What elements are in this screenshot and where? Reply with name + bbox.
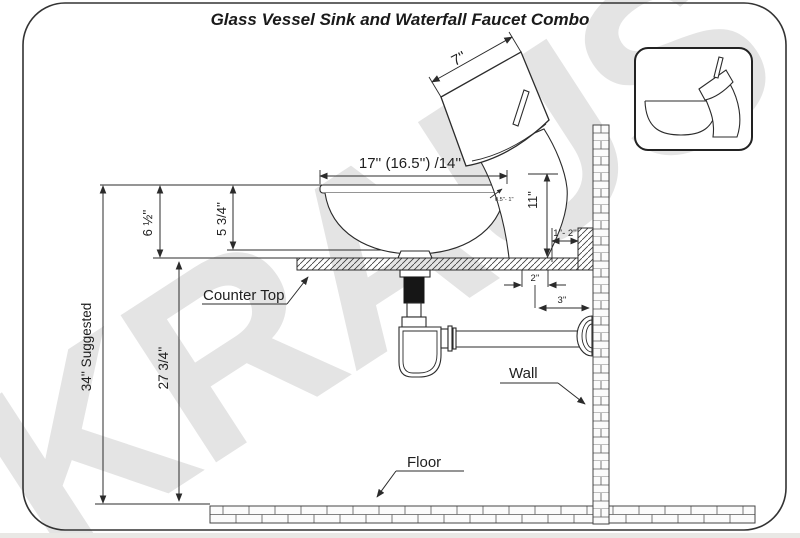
diagram-page: KRAUS — [0, 0, 800, 538]
tailpiece-pipe — [407, 303, 421, 317]
label-floor: Floor — [377, 454, 464, 497]
sink-rim — [320, 185, 510, 193]
backsplash — [578, 228, 593, 270]
wall-escutcheon — [577, 316, 592, 356]
dim-suggested-height-text: 34'' Suggested — [79, 303, 94, 391]
dim-bowl-height-text: 5 3/4'' — [214, 202, 229, 236]
dim-drain-width-text: 2'' — [531, 273, 540, 284]
product-inset — [635, 48, 752, 150]
slip-ring-2 — [453, 328, 456, 349]
floor-section — [210, 506, 755, 523]
mounting-ring — [398, 251, 432, 258]
photo-edge — [0, 533, 800, 538]
dim-wall-clearance-text: 1''- 2'' — [553, 228, 577, 239]
threaded-tailpiece — [404, 277, 424, 303]
floor-text: Floor — [407, 454, 441, 471]
dim-spout-gap-text: 0.5''- 1'' — [495, 197, 514, 203]
drain-flange — [400, 270, 430, 277]
trap-outlet — [441, 329, 448, 348]
dim-drain-to-wall-text: 3'' — [558, 295, 567, 306]
counter-top-text: Counter Top — [203, 287, 284, 304]
dim-spout-height-text: 11'' — [526, 191, 540, 209]
wall-text: Wall — [509, 365, 538, 382]
dim-counter-height-text: 27 3/4'' — [156, 347, 171, 390]
counter-slab — [297, 258, 578, 270]
dim-sink-diameter-text: 17'' (16.5'') /14'' — [359, 155, 461, 172]
wall-section — [593, 125, 609, 524]
installation-diagram: KRAUS — [0, 0, 800, 538]
slip-ring-1 — [448, 326, 452, 351]
page-title: Glass Vessel Sink and Waterfall Faucet C… — [211, 10, 590, 29]
trap-nut — [402, 317, 426, 327]
label-wall: Wall — [500, 365, 585, 404]
dim-rim-to-counter-text: 6 ½'' — [140, 210, 155, 237]
